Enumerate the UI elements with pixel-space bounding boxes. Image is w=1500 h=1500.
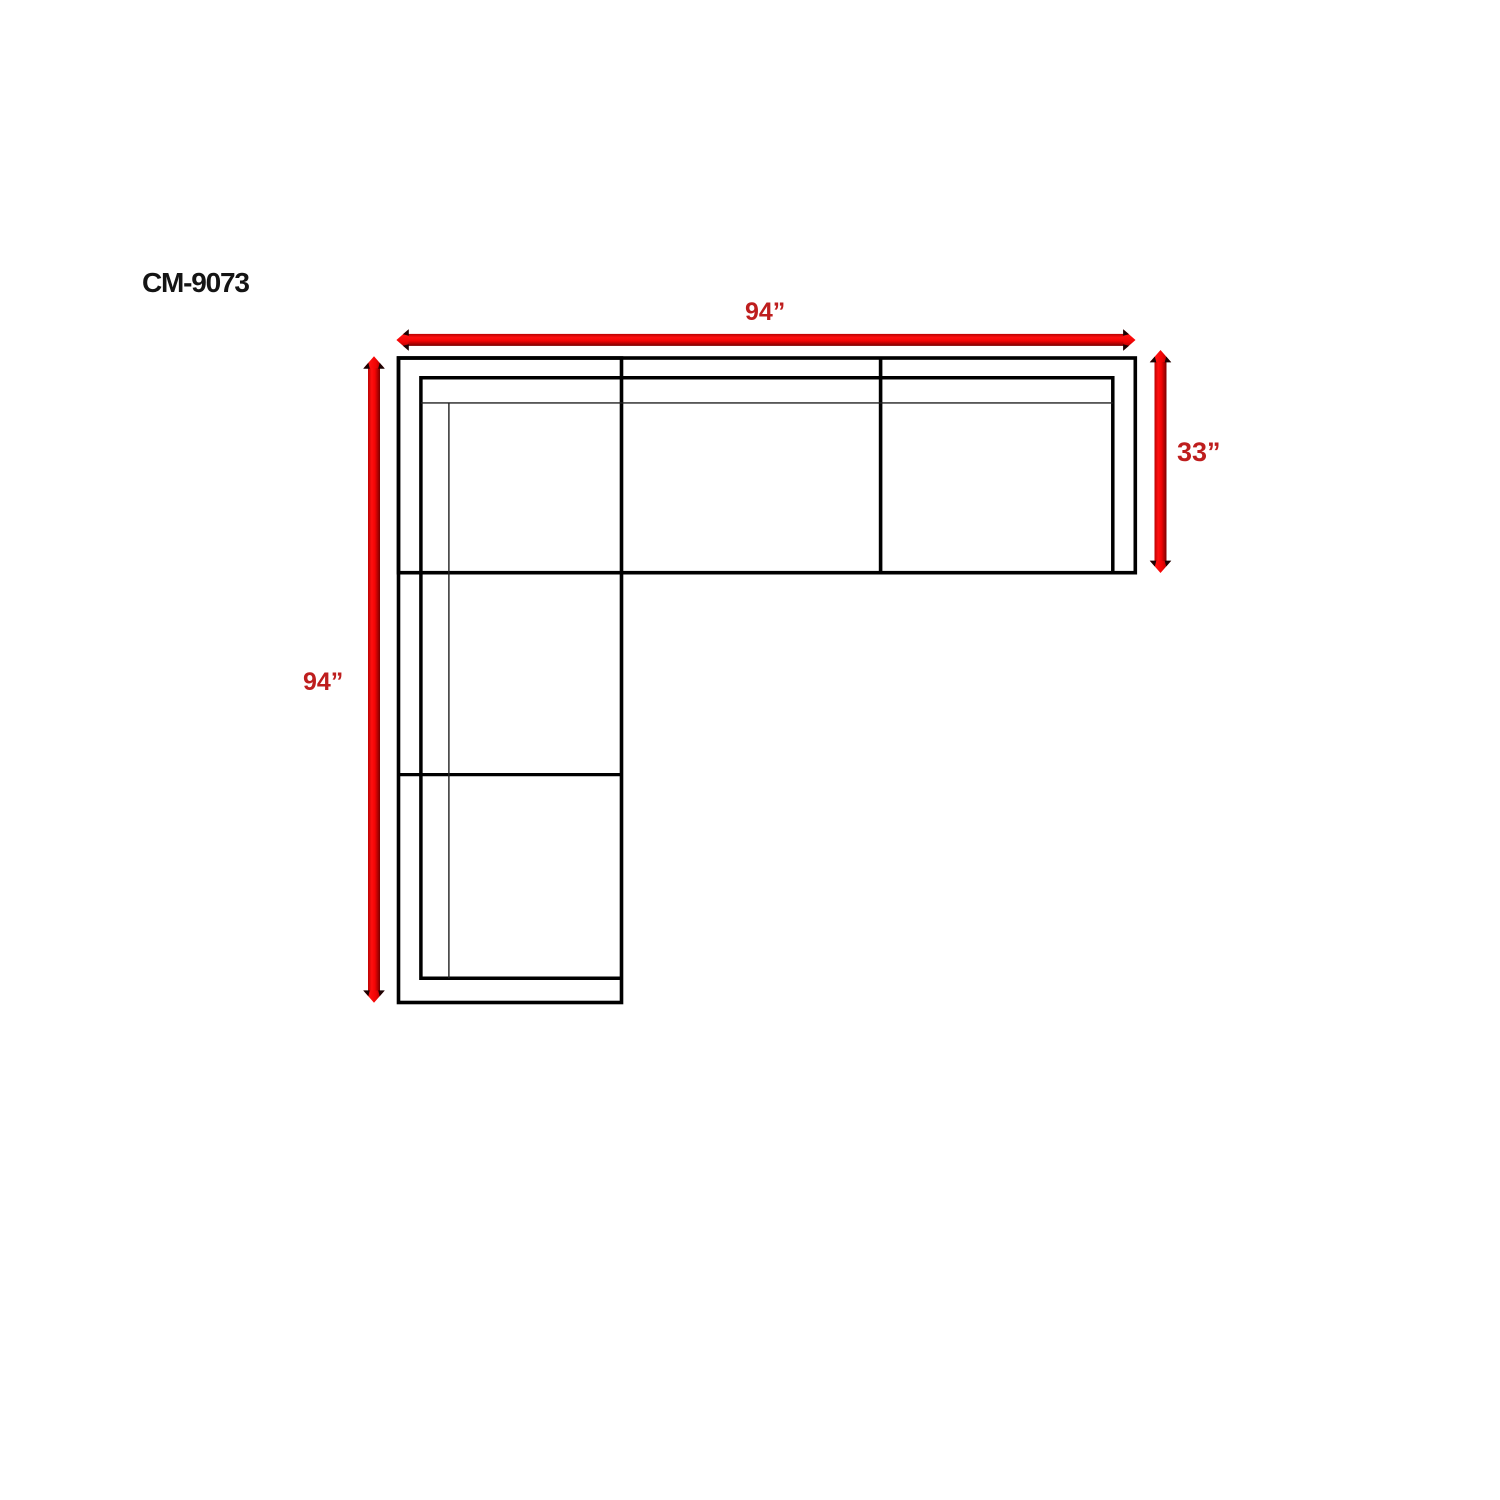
svg-text:33”: 33” xyxy=(1177,437,1221,467)
svg-text:94”: 94” xyxy=(303,668,343,696)
svg-text:94”: 94” xyxy=(745,298,785,326)
svg-text:CM-9073: CM-9073 xyxy=(142,267,249,298)
